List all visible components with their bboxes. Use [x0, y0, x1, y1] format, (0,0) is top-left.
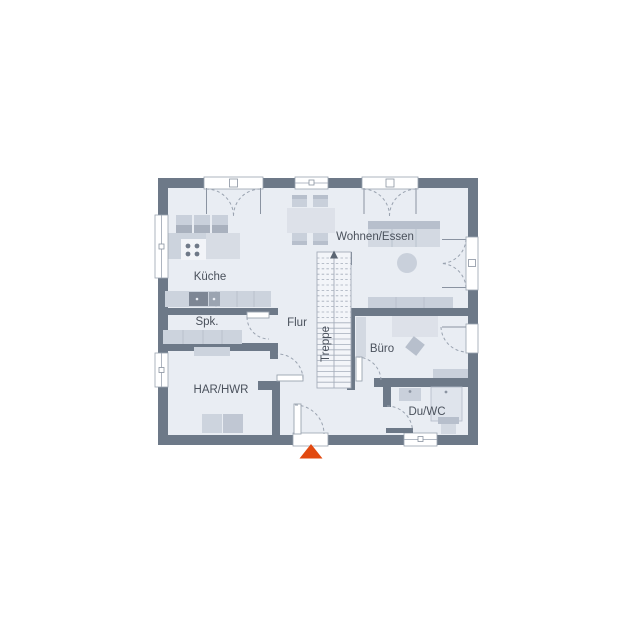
fixture-dot [213, 298, 216, 301]
cooktop [181, 239, 206, 260]
dining-chair [313, 241, 328, 245]
door-handle [469, 260, 476, 267]
fixture-dot [196, 298, 199, 301]
toilet-bowl [441, 424, 456, 434]
staircase [317, 251, 351, 389]
washer [202, 414, 222, 433]
burner [195, 252, 200, 257]
wall-segment [383, 387, 391, 407]
door-handle [230, 179, 238, 187]
room-label-spk: Spk. [195, 316, 218, 328]
bar-stool [194, 215, 210, 225]
exterior-door [466, 324, 478, 353]
room-label-treppe: Treppe [320, 326, 332, 362]
dining-chair [292, 241, 307, 245]
fixture-dot [409, 390, 412, 393]
door-leaf [247, 312, 269, 318]
entrance-door-leaf [294, 404, 301, 434]
dining-chair-seat [292, 199, 307, 207]
burner [195, 244, 200, 249]
dining-table [287, 208, 335, 233]
room-label-har-hwr: HAR/HWR [194, 384, 249, 396]
dining-chair-seat [313, 199, 328, 207]
toilet-tank [438, 417, 459, 424]
fixture-dot [445, 391, 448, 394]
floor-plan-page: Küche Spk. Flur HAR/HWR Treppe Wohnen/Es… [0, 0, 636, 636]
door-leaf [386, 428, 413, 433]
wall-segment [347, 308, 468, 316]
door-leaf [277, 375, 303, 381]
window-handle [418, 437, 423, 442]
wall-segment [272, 390, 280, 437]
dining-chair-seat [292, 233, 307, 241]
desk [392, 316, 438, 337]
coffee-table [397, 253, 417, 273]
entrance-opening [293, 433, 328, 446]
sofa-back [368, 221, 440, 229]
utility-shelf [194, 347, 230, 356]
kitchen-sink [189, 292, 208, 306]
burner [186, 252, 191, 257]
window-handle [159, 244, 164, 249]
wall-segment [468, 178, 478, 445]
room-label-kueche: Küche [194, 271, 227, 283]
bar-stool [212, 225, 228, 233]
floor-plan-canvas: Küche Spk. Flur HAR/HWR Treppe Wohnen/Es… [0, 0, 636, 636]
room-label-buero: Büro [370, 343, 394, 355]
room-label-wohnen-essen: Wohnen/Essen [336, 231, 414, 243]
bar-stool [176, 215, 192, 225]
sink [399, 388, 421, 401]
office-sideboard [433, 369, 468, 378]
door-leaf [356, 357, 362, 381]
bar-stool [212, 215, 228, 225]
room-label-flur: Flur [287, 317, 307, 329]
kitchen-island-top [206, 233, 240, 259]
burner [186, 244, 191, 249]
pantry-shelf [163, 330, 242, 344]
wall-segment [258, 381, 280, 390]
office-shelf [356, 317, 366, 357]
sideboard [368, 297, 453, 308]
bar-stool [176, 225, 192, 233]
door-handle [386, 179, 394, 187]
dining-chair-seat [313, 233, 328, 241]
window-handle [159, 368, 164, 373]
dryer [223, 414, 243, 433]
wall-segment [374, 378, 468, 387]
bar-stool [194, 225, 210, 233]
wall-segment [270, 351, 278, 359]
window-handle [309, 180, 314, 185]
room-label-du-wc: Du/WC [408, 406, 445, 418]
